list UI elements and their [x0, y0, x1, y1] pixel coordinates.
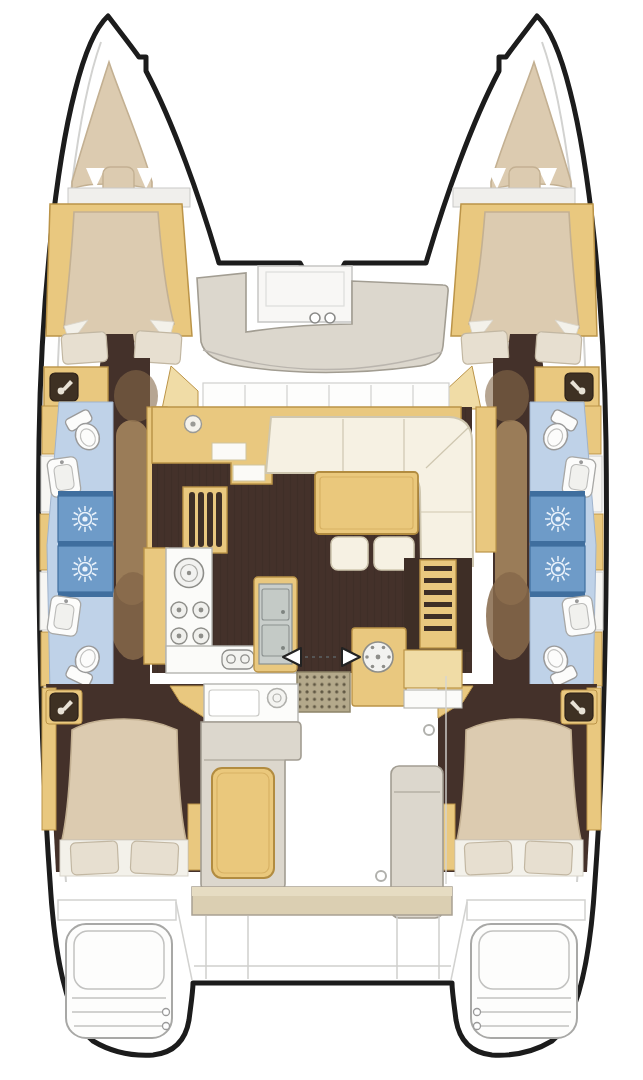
sink-basin [262, 625, 289, 656]
floor-plan-stage [0, 0, 643, 1080]
companionway-steps-starboard [404, 558, 472, 652]
step-tread [424, 590, 452, 595]
aft-galley-front [404, 690, 462, 708]
front-window-band [203, 383, 449, 409]
aft-bed [62, 719, 186, 840]
bar-hatch [209, 690, 259, 716]
wet-bar [204, 684, 298, 722]
fitting-circle [163, 1023, 170, 1030]
step-tread [424, 614, 452, 619]
basin-icon [47, 595, 82, 637]
step-tread [189, 492, 195, 547]
step-tread [424, 578, 452, 583]
galley-taps-icon [222, 650, 254, 669]
step-tread [198, 492, 204, 547]
bathroom [47, 402, 113, 692]
step-tread [424, 626, 452, 631]
aft-bench-top [192, 887, 452, 896]
aft-cabin [42, 684, 205, 876]
catamaran-floor-plan [0, 0, 643, 1080]
sink-drain [281, 610, 285, 614]
deck-ring-icon [325, 313, 335, 323]
stall-sill [58, 592, 113, 597]
fitting-circle [163, 1009, 170, 1016]
transom [58, 900, 192, 1038]
galley-cabinet [144, 548, 168, 664]
salon-table [315, 472, 418, 534]
mixer-icon [50, 373, 78, 401]
round-sink-drain [187, 571, 191, 575]
mat-dots [299, 674, 348, 710]
step-tread [424, 602, 452, 607]
pillow [70, 841, 119, 875]
aft-bench [192, 887, 452, 915]
entry-mat [297, 672, 350, 712]
salon [144, 383, 473, 712]
mixer-icon [50, 693, 78, 721]
sink-drain [281, 646, 285, 650]
compass-dot [190, 421, 195, 426]
stool [331, 537, 368, 570]
bar-sink-icon [268, 689, 287, 708]
cockpit-table [212, 768, 274, 878]
pillow [61, 331, 108, 364]
swim-step-outline [66, 924, 172, 1038]
step-tread [424, 566, 452, 571]
aft-burner-icon [363, 642, 393, 672]
deck-ring-icon [310, 313, 320, 323]
step-tread [207, 492, 213, 547]
chart-desk-item [212, 443, 246, 460]
chart-desk-item [233, 465, 265, 481]
pillow [130, 841, 179, 875]
stall-sill [58, 491, 113, 496]
companionway-steps-port [183, 487, 227, 553]
aft-galley-shelf [404, 650, 462, 688]
stall-sill [58, 541, 113, 546]
foredeck-hatch [258, 266, 352, 322]
sink-basin [262, 589, 289, 620]
step-tread [216, 492, 222, 547]
